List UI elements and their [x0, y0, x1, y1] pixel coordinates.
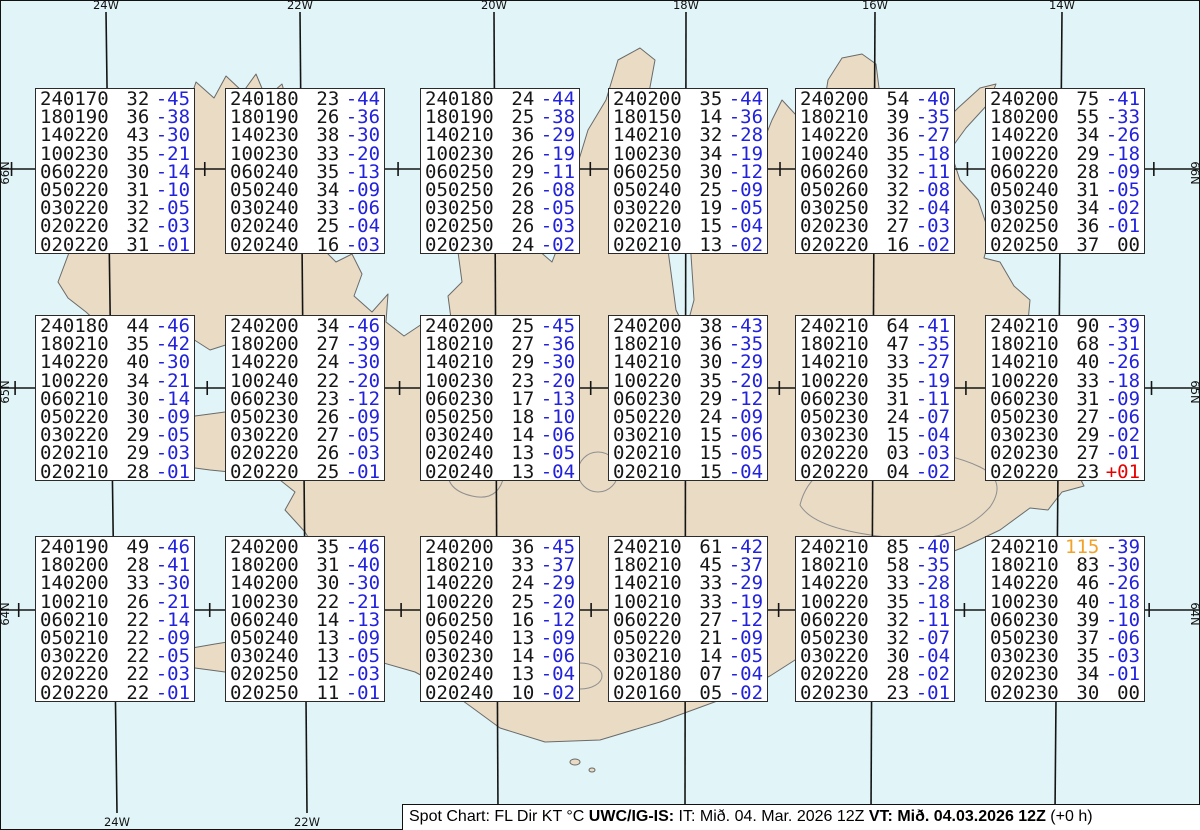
temperature-c: -03	[541, 217, 575, 235]
spot-line: 02025012-03	[230, 665, 380, 683]
wind-speed-kt: 23	[875, 684, 909, 702]
flight-level-wind-dir: 020220	[800, 444, 869, 462]
longitude-label-top: 20W	[481, 0, 507, 12]
spot-line: 0202503700	[990, 236, 1140, 254]
wind-speed-kt: 13	[500, 444, 534, 462]
flight-level-wind-dir: 020210	[40, 444, 109, 462]
spot-line: 02022016-02	[800, 236, 950, 254]
spot-line: 02021013-02	[613, 236, 763, 254]
spot-line: 02023023-01	[800, 684, 950, 702]
wind-speed-kt: 12	[305, 665, 339, 683]
temperature-c: -28	[729, 126, 763, 144]
wind-speed-kt: 31	[115, 236, 149, 254]
wind-speed-kt: 10	[500, 684, 534, 702]
temperature-c: 00	[1106, 684, 1140, 702]
temperature-c: -05	[729, 444, 763, 462]
flight-level-wind-dir: 020220	[40, 684, 109, 702]
spot-data-box: 24020036-4518021033-3714022024-291002202…	[420, 536, 580, 702]
spot-line: 14022043-30	[40, 126, 190, 144]
spot-data-box: 24018023-4418019026-3614023038-301002303…	[225, 88, 385, 254]
temperature-c: -29	[541, 574, 575, 592]
flight-level-wind-dir: 020240	[425, 665, 494, 683]
spot-line: 02022022-01	[40, 684, 190, 702]
temperature-c: -29	[729, 574, 763, 592]
spot-line: 14022036-27	[800, 126, 950, 144]
spot-line: 02023027-03	[800, 217, 950, 235]
flight-level-wind-dir: 020210	[613, 217, 682, 235]
spot-line: 14022024-30	[230, 353, 380, 371]
wind-speed-kt: 27	[875, 217, 909, 235]
spot-line: 02022032-03	[40, 217, 190, 235]
temperature-c: -02	[541, 684, 575, 702]
wind-speed-kt: 13	[500, 665, 534, 683]
flight-level-wind-dir: 140230	[230, 126, 299, 144]
longitude-label-top: 22W	[287, 0, 313, 12]
wind-speed-kt: 15	[688, 217, 722, 235]
longitude-label-top: 14W	[1049, 0, 1075, 12]
wind-speed-kt: 32	[688, 126, 722, 144]
spot-line: 02022022-03	[40, 665, 190, 683]
wind-speed-kt: 36	[875, 126, 909, 144]
flight-level-wind-dir: 140220	[425, 574, 494, 592]
spot-data-box: 240210115-3918021083-3014022046-26100230…	[985, 536, 1145, 702]
flight-level-wind-dir: 020220	[800, 665, 869, 683]
flight-level-wind-dir: 140210	[425, 353, 494, 371]
temperature-c: -02	[729, 684, 763, 702]
spot-line: 14021029-30	[425, 353, 575, 371]
temperature-c: -03	[346, 236, 380, 254]
flight-level-wind-dir: 020210	[613, 463, 682, 481]
spot-line: 02021029-03	[40, 444, 190, 462]
wind-speed-kt: 33	[115, 574, 149, 592]
wind-speed-kt: 30	[688, 353, 722, 371]
spot-line: 02023034-01	[990, 665, 1140, 683]
flight-level-wind-dir: 140210	[800, 353, 869, 371]
wind-speed-kt: 36	[1065, 217, 1099, 235]
wind-speed-kt: 30	[1065, 684, 1099, 702]
longitude-label-top: 18W	[673, 0, 699, 12]
temperature-c: -02	[541, 236, 575, 254]
temperature-c: -01	[156, 236, 190, 254]
footer-text-bold: UWC/IG-IS:	[589, 808, 674, 825]
spot-data-box: 24019049-4618020028-4114020033-301002102…	[35, 536, 195, 702]
flight-level-wind-dir: 020220	[990, 463, 1059, 481]
wind-speed-kt: 23	[1065, 463, 1099, 481]
flight-level-wind-dir: 020230	[425, 236, 494, 254]
temperature-c: -29	[541, 126, 575, 144]
spot-chart: 24W24W22W22W20W20W18W18W16W16W14W14W66N6…	[0, 0, 1200, 830]
longitude-label-top: 24W	[93, 0, 119, 12]
temperature-c: -01	[156, 463, 190, 481]
longitude-label-top: 16W	[862, 0, 888, 12]
temperature-c: -04	[541, 463, 575, 481]
wind-speed-kt: 22	[115, 684, 149, 702]
temperature-c: -01	[1106, 217, 1140, 235]
spot-data-box: 24021085-4018021058-3514022033-281002203…	[795, 536, 955, 702]
spot-data-box: 24021090-3918021068-3114021040-261002203…	[985, 315, 1145, 481]
spot-line: 02022025-01	[230, 463, 380, 481]
spot-line: 14021033-27	[800, 353, 950, 371]
longitude-label-bottom: 24W	[104, 815, 130, 829]
temperature-c: -01	[346, 463, 380, 481]
flight-level-wind-dir: 140220	[800, 574, 869, 592]
spot-line: 02023027-01	[990, 444, 1140, 462]
temperature-c: -03	[916, 444, 950, 462]
wind-speed-kt: 05	[688, 684, 722, 702]
temperature-c: -03	[156, 217, 190, 235]
spot-data-box: 24017032-4518019036-3814022043-301002303…	[35, 88, 195, 254]
temperature-c: -02	[916, 236, 950, 254]
temperature-c: -03	[156, 444, 190, 462]
temperature-c: -26	[1106, 574, 1140, 592]
spot-line: 14022033-28	[800, 574, 950, 592]
wind-speed-kt: 29	[500, 353, 534, 371]
spot-data-box: 24018024-4418019025-3814021036-291002302…	[420, 88, 580, 254]
flight-level-wind-dir: 020180	[613, 665, 682, 683]
flight-level-wind-dir: 020220	[230, 463, 299, 481]
latitude-label-right: 66N	[1188, 161, 1200, 184]
spot-line: 14020033-30	[40, 574, 190, 592]
flight-level-wind-dir: 140200	[230, 574, 299, 592]
temperature-c: -01	[346, 684, 380, 702]
temperature-c: -27	[916, 353, 950, 371]
spot-data-box: 24020034-4618020027-3914022024-301002402…	[225, 315, 385, 481]
wind-speed-kt: 34	[1065, 126, 1099, 144]
wind-speed-kt: 24	[500, 574, 534, 592]
flight-level-wind-dir: 140210	[613, 574, 682, 592]
flight-level-wind-dir: 020220	[800, 236, 869, 254]
spot-data-box: 24021064-4118021047-3514021033-271002203…	[795, 315, 955, 481]
spot-line: 02022004-02	[800, 463, 950, 481]
spot-data-box: 24020038-4318021036-3514021030-291002203…	[608, 315, 768, 481]
temperature-c: -04	[729, 217, 763, 235]
temperature-c: -02	[916, 665, 950, 683]
wind-speed-kt: 40	[115, 353, 149, 371]
temperature-c: -05	[541, 444, 575, 462]
temperature-c: -04	[541, 665, 575, 683]
longitude-label-bottom: 22W	[294, 815, 320, 829]
spot-line: 02025011-01	[230, 684, 380, 702]
spot-data-box: 24020054-4018021039-3514022036-271002403…	[795, 88, 955, 254]
flight-level-wind-dir: 020220	[40, 665, 109, 683]
wind-speed-kt: 28	[875, 665, 909, 683]
flight-level-wind-dir: 020220	[230, 444, 299, 462]
spot-line: 02024010-02	[425, 684, 575, 702]
wind-speed-kt: 25	[305, 463, 339, 481]
flight-level-wind-dir: 020230	[800, 684, 869, 702]
spot-line: 14022024-29	[425, 574, 575, 592]
temperature-c: -30	[156, 353, 190, 371]
spot-line: 02025026-03	[425, 217, 575, 235]
spot-line: 02021015-04	[613, 463, 763, 481]
spot-line: 14021040-26	[990, 353, 1140, 371]
spot-line: 02023024-02	[425, 236, 575, 254]
latitude-label-left: 64N	[0, 602, 12, 625]
flight-level-wind-dir: 020210	[613, 444, 682, 462]
spot-line: 14021033-29	[613, 574, 763, 592]
spot-line: 02022031-01	[40, 236, 190, 254]
wind-speed-kt: 38	[305, 126, 339, 144]
spot-data-box: 24020035-4618020031-4014020030-301002302…	[225, 536, 385, 702]
temperature-c: -30	[156, 126, 190, 144]
temperature-c: -01	[1106, 665, 1140, 683]
flight-level-wind-dir: 020220	[40, 236, 109, 254]
flight-level-wind-dir: 020240	[425, 684, 494, 702]
footer-bar: Spot Chart: FL Dir KT °C UWC/IG-IS: IT: …	[402, 804, 1200, 830]
spot-line: 14023038-30	[230, 126, 380, 144]
footer-text: Spot Chart: FL Dir KT °C	[409, 808, 589, 825]
latitude-label-right: 64N	[1188, 602, 1200, 625]
spot-line: 02021028-01	[40, 463, 190, 481]
flight-level-wind-dir: 140220	[990, 574, 1059, 592]
spot-line: 0202303000	[990, 684, 1140, 702]
flight-level-wind-dir: 020210	[613, 236, 682, 254]
flight-level-wind-dir: 020250	[425, 217, 494, 235]
latitude-label-left: 66N	[0, 161, 12, 184]
spot-line: 02024013-04	[425, 665, 575, 683]
flight-level-wind-dir: 020230	[800, 217, 869, 235]
flight-level-wind-dir: 020240	[230, 217, 299, 235]
spot-line: 02021015-04	[613, 217, 763, 235]
flight-level-wind-dir: 140210	[613, 353, 682, 371]
spot-line: 02018007-04	[613, 665, 763, 683]
spot-line: 02024013-05	[425, 444, 575, 462]
spot-data-box: 24020035-4418015014-3614021032-281002303…	[608, 88, 768, 254]
wind-speed-kt: 03	[875, 444, 909, 462]
wind-speed-kt: 15	[688, 444, 722, 462]
wind-speed-kt: 43	[115, 126, 149, 144]
spot-line: 02022003-03	[800, 444, 950, 462]
wind-speed-kt: 30	[305, 574, 339, 592]
latitude-label-right: 65N	[1188, 380, 1200, 403]
spot-line: 14022034-26	[990, 126, 1140, 144]
flight-level-wind-dir: 020160	[613, 684, 682, 702]
spot-data-box: 24018044-4618021035-4214022040-301002203…	[35, 315, 195, 481]
wind-speed-kt: 36	[500, 126, 534, 144]
temperature-c: -30	[156, 574, 190, 592]
flight-level-wind-dir: 020220	[40, 217, 109, 235]
spot-line: 02024016-03	[230, 236, 380, 254]
temperature-c: -04	[346, 217, 380, 235]
wind-speed-kt: 11	[305, 684, 339, 702]
flight-level-wind-dir: 020230	[990, 444, 1059, 462]
wind-speed-kt: 26	[500, 217, 534, 235]
wind-speed-kt: 40	[1065, 353, 1099, 371]
spot-line: 02022023+01	[990, 463, 1140, 481]
wind-speed-kt: 15	[688, 463, 722, 481]
flight-level-wind-dir: 020250	[990, 236, 1059, 254]
wind-speed-kt: 33	[875, 574, 909, 592]
spot-data-box: 24020075-4118020055-3314022034-261002202…	[985, 88, 1145, 254]
wind-speed-kt: 33	[688, 574, 722, 592]
temperature-c: -30	[541, 353, 575, 371]
flight-level-wind-dir: 020220	[800, 463, 869, 481]
temperature-c: -29	[729, 353, 763, 371]
flight-level-wind-dir: 020240	[425, 463, 494, 481]
flight-level-wind-dir: 140220	[40, 353, 109, 371]
temperature-c: -27	[916, 126, 950, 144]
temperature-c: +01	[1106, 463, 1140, 481]
wind-speed-kt: 26	[305, 444, 339, 462]
footer-text-bold: VT: Mið. 04.03.2026 12Z	[869, 808, 1046, 825]
temperature-c: -02	[916, 463, 950, 481]
wind-speed-kt: 13	[500, 463, 534, 481]
flight-level-wind-dir: 140200	[40, 574, 109, 592]
temperature-c: -03	[346, 665, 380, 683]
footer-text: (+0 h)	[1046, 808, 1093, 825]
wind-speed-kt: 22	[115, 665, 149, 683]
spot-line: 14021032-28	[613, 126, 763, 144]
wind-speed-kt: 28	[115, 463, 149, 481]
temperature-c: -01	[156, 684, 190, 702]
spot-data-box: 24020025-4518021027-3614021029-301002302…	[420, 315, 580, 481]
spot-line: 14022046-26	[990, 574, 1140, 592]
wind-speed-kt: 34	[1065, 665, 1099, 683]
flight-level-wind-dir: 140210	[990, 353, 1059, 371]
temperature-c: -03	[156, 665, 190, 683]
wind-speed-kt: 24	[305, 353, 339, 371]
temperature-c: 00	[1106, 236, 1140, 254]
flight-level-wind-dir: 140220	[990, 126, 1059, 144]
flight-level-wind-dir: 140210	[613, 126, 682, 144]
temperature-c: -26	[1106, 126, 1140, 144]
wind-speed-kt: 25	[305, 217, 339, 235]
wind-speed-kt: 13	[688, 236, 722, 254]
spot-line: 02022026-03	[230, 444, 380, 462]
flight-level-wind-dir: 140210	[425, 126, 494, 144]
temperature-c: -30	[346, 353, 380, 371]
spot-line: 02024013-04	[425, 463, 575, 481]
wind-speed-kt: 33	[875, 353, 909, 371]
temperature-c: -03	[346, 444, 380, 462]
spot-line: 14021030-29	[613, 353, 763, 371]
temperature-c: -03	[916, 217, 950, 235]
temperature-c: -26	[1106, 353, 1140, 371]
spot-line: 02021015-05	[613, 444, 763, 462]
spot-line: 02022028-02	[800, 665, 950, 683]
spot-line: 02024025-04	[230, 217, 380, 235]
wind-speed-kt: 46	[1065, 574, 1099, 592]
wind-speed-kt: 29	[115, 444, 149, 462]
temperature-c: -04	[729, 665, 763, 683]
flight-level-wind-dir: 020250	[230, 665, 299, 683]
wind-speed-kt: 16	[305, 236, 339, 254]
temperature-c: -30	[346, 574, 380, 592]
flight-level-wind-dir: 140220	[230, 353, 299, 371]
temperature-c: -01	[916, 684, 950, 702]
spot-line: 02016005-02	[613, 684, 763, 702]
wind-speed-kt: 37	[1065, 236, 1099, 254]
flight-level-wind-dir: 020230	[990, 684, 1059, 702]
flight-level-wind-dir: 020230	[990, 665, 1059, 683]
temperature-c: -30	[346, 126, 380, 144]
temperature-c: -28	[916, 574, 950, 592]
flight-level-wind-dir: 140220	[40, 126, 109, 144]
flight-level-wind-dir: 020210	[40, 463, 109, 481]
flight-level-wind-dir: 140220	[800, 126, 869, 144]
spot-line: 02025036-01	[990, 217, 1140, 235]
temperature-c: -02	[729, 236, 763, 254]
footer-text: IT: Mið. 04. Mar. 2026 12Z	[674, 808, 869, 825]
flight-level-wind-dir: 020250	[230, 684, 299, 702]
flight-level-wind-dir: 020250	[990, 217, 1059, 235]
latitude-label-left: 65N	[0, 380, 12, 403]
wind-speed-kt: 07	[688, 665, 722, 683]
wind-speed-kt: 04	[875, 463, 909, 481]
spot-line: 14020030-30	[230, 574, 380, 592]
flight-level-wind-dir: 020240	[230, 236, 299, 254]
spot-line: 14022040-30	[40, 353, 190, 371]
wind-speed-kt: 24	[500, 236, 534, 254]
temperature-c: -04	[729, 463, 763, 481]
wind-speed-kt: 32	[115, 217, 149, 235]
spot-data-box: 24021061-4218021045-3714021033-291002103…	[608, 536, 768, 702]
temperature-c: -01	[1106, 444, 1140, 462]
flight-level-wind-dir: 020240	[425, 444, 494, 462]
spot-line: 14021036-29	[425, 126, 575, 144]
wind-speed-kt: 27	[1065, 444, 1099, 462]
wind-speed-kt: 16	[875, 236, 909, 254]
